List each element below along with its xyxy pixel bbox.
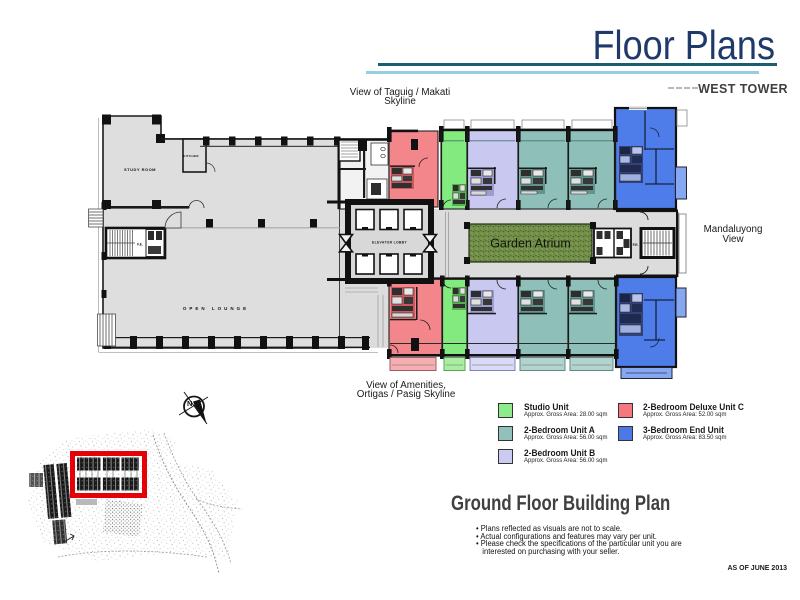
svg-text:N: N [187,399,192,408]
svg-text:Garden Atrium: Garden Atrium [490,237,571,251]
svg-text:F.E.: F.E. [633,243,639,247]
svg-text:KITCHEN: KITCHEN [183,154,198,158]
svg-text:STUDY ROOM: STUDY ROOM [124,167,156,172]
svg-text:F.E.: F.E. [137,243,143,247]
svg-text:OPEN LOUNGE: OPEN LOUNGE [183,306,249,311]
svg-text:ELEVATOR LOBBY: ELEVATOR LOBBY [372,241,407,245]
